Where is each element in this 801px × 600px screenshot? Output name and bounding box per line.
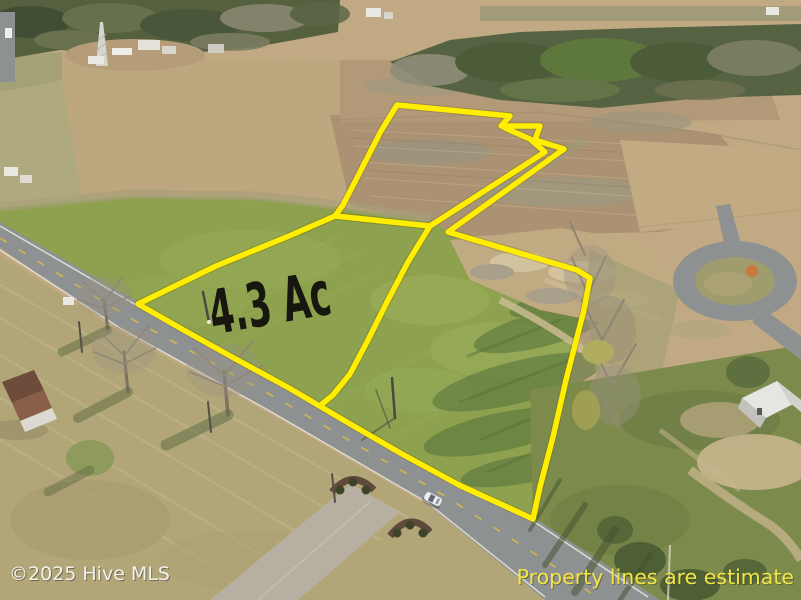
- copyright-watermark: ©2025 Hive MLS: [9, 563, 170, 585]
- disclaimer-text: Property lines are estimate: [517, 565, 794, 589]
- photo-canvas: 4.3 Ac ©2025 Hive MLS ©2025 Hive MLS Pro…: [0, 0, 801, 600]
- dirt-pile: [746, 265, 758, 277]
- aerial-property-photo: 4.3 Ac ©2025 Hive MLS ©2025 Hive MLS Pro…: [0, 0, 801, 600]
